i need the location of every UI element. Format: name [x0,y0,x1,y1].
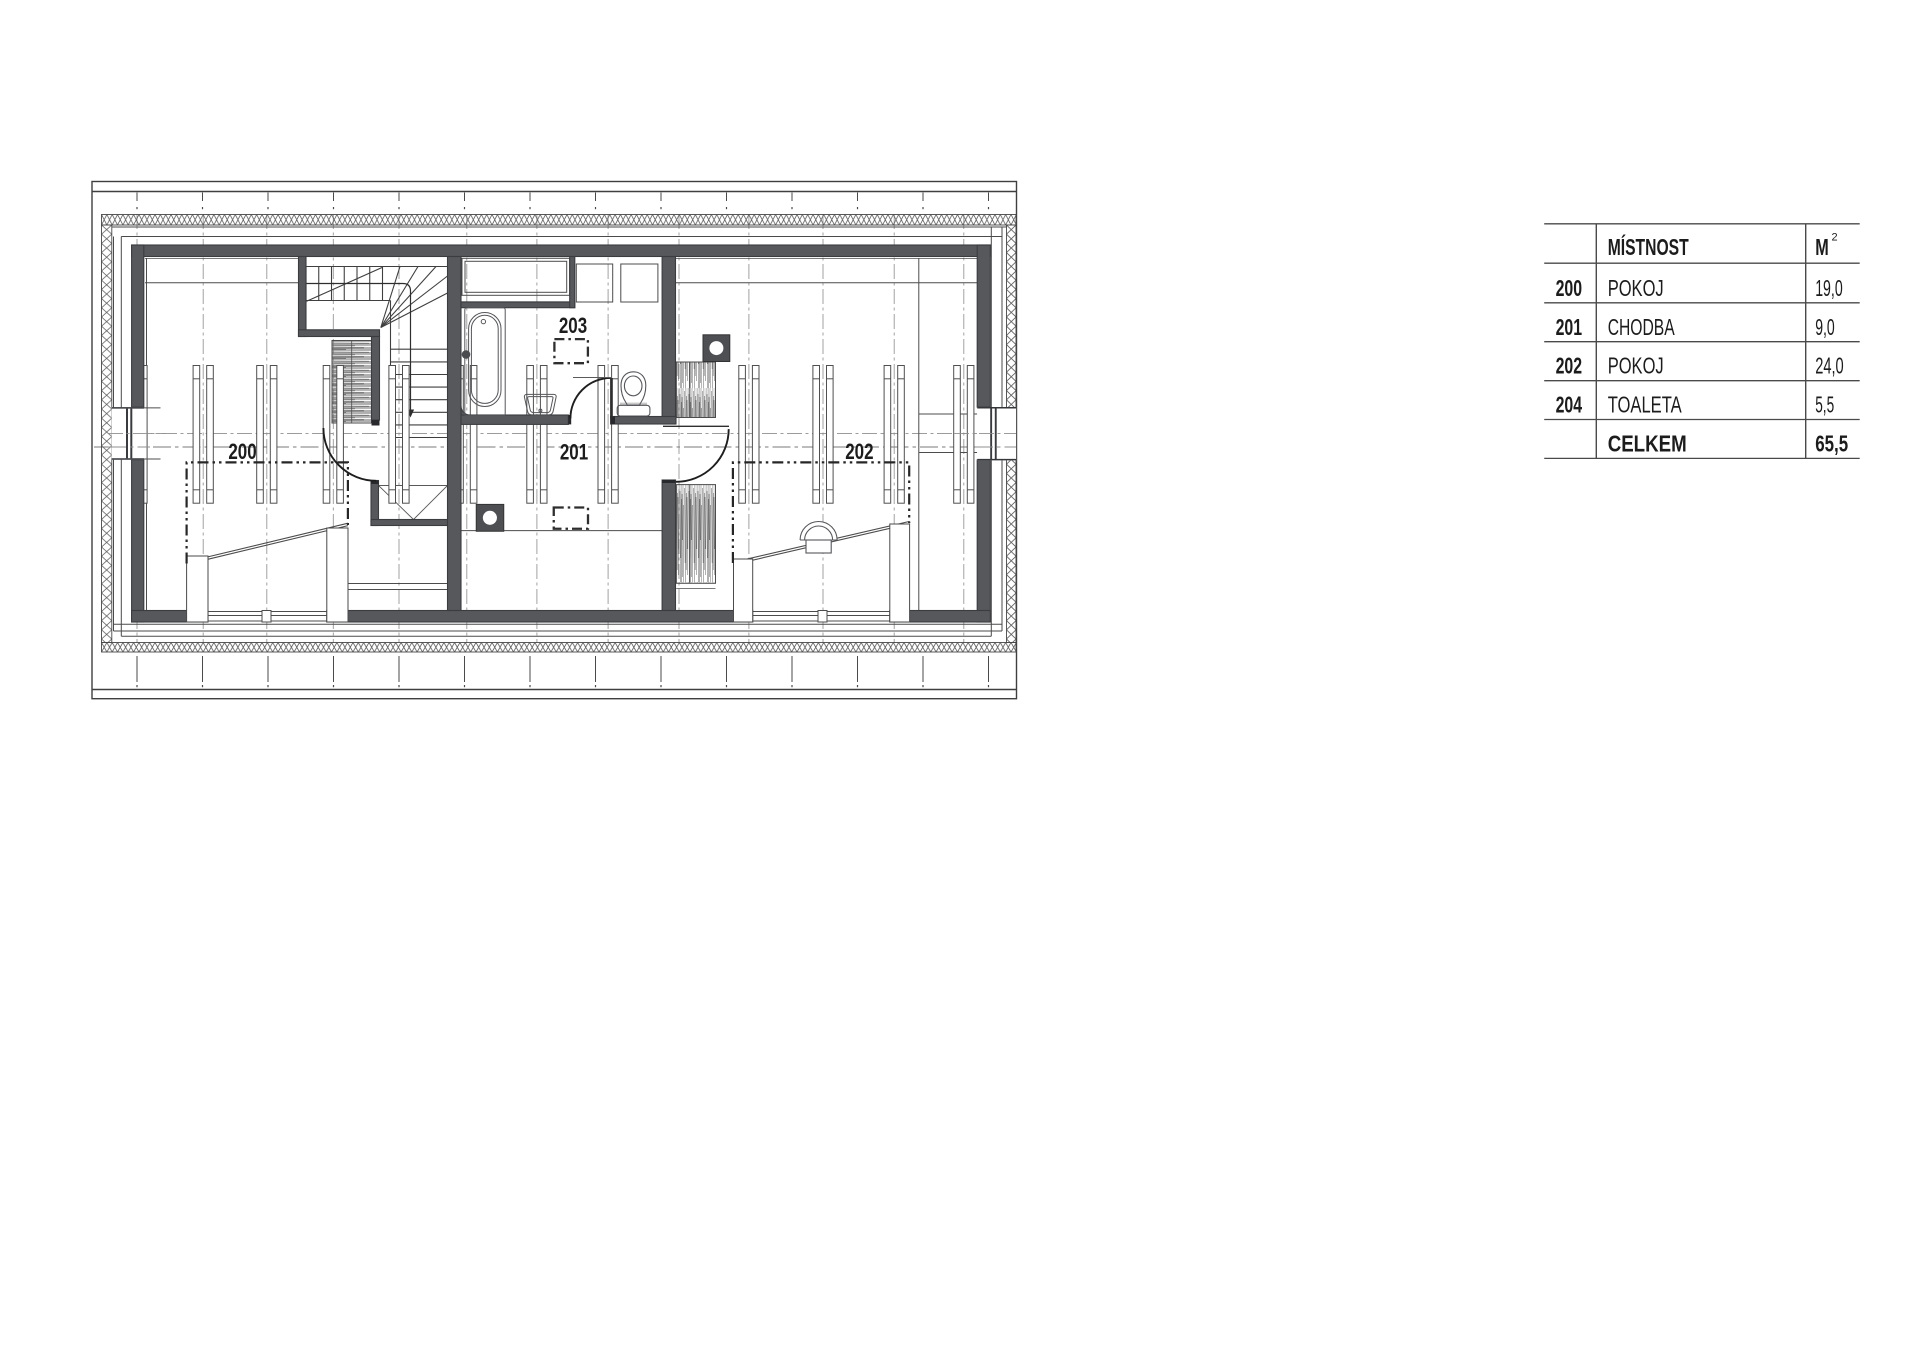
svg-text:200: 200 [228,439,256,464]
svg-text:200: 200 [1556,275,1583,301]
svg-text:201: 201 [560,439,588,464]
svg-text:POKOJ: POKOJ [1608,353,1664,379]
svg-text:204: 204 [1556,392,1583,418]
svg-text:202: 202 [845,439,873,464]
svg-text:65,5: 65,5 [1815,431,1848,457]
svg-text:203: 203 [559,313,587,338]
svg-text:19,0: 19,0 [1815,275,1843,301]
svg-text:201: 201 [1556,314,1583,340]
svg-text:POKOJ: POKOJ [1608,275,1664,301]
svg-text:24,0: 24,0 [1815,353,1844,379]
svg-text:TOALETA: TOALETA [1608,392,1682,418]
svg-text:2: 2 [1832,232,1838,244]
svg-text:M: M [1815,234,1829,260]
svg-text:CHODBA: CHODBA [1608,314,1675,340]
svg-text:9,0: 9,0 [1815,314,1835,340]
svg-text:MÍSTNOST: MÍSTNOST [1608,233,1689,260]
svg-text:CELKEM: CELKEM [1608,431,1687,457]
svg-text:5,5: 5,5 [1815,392,1834,418]
svg-text:202: 202 [1556,353,1583,379]
